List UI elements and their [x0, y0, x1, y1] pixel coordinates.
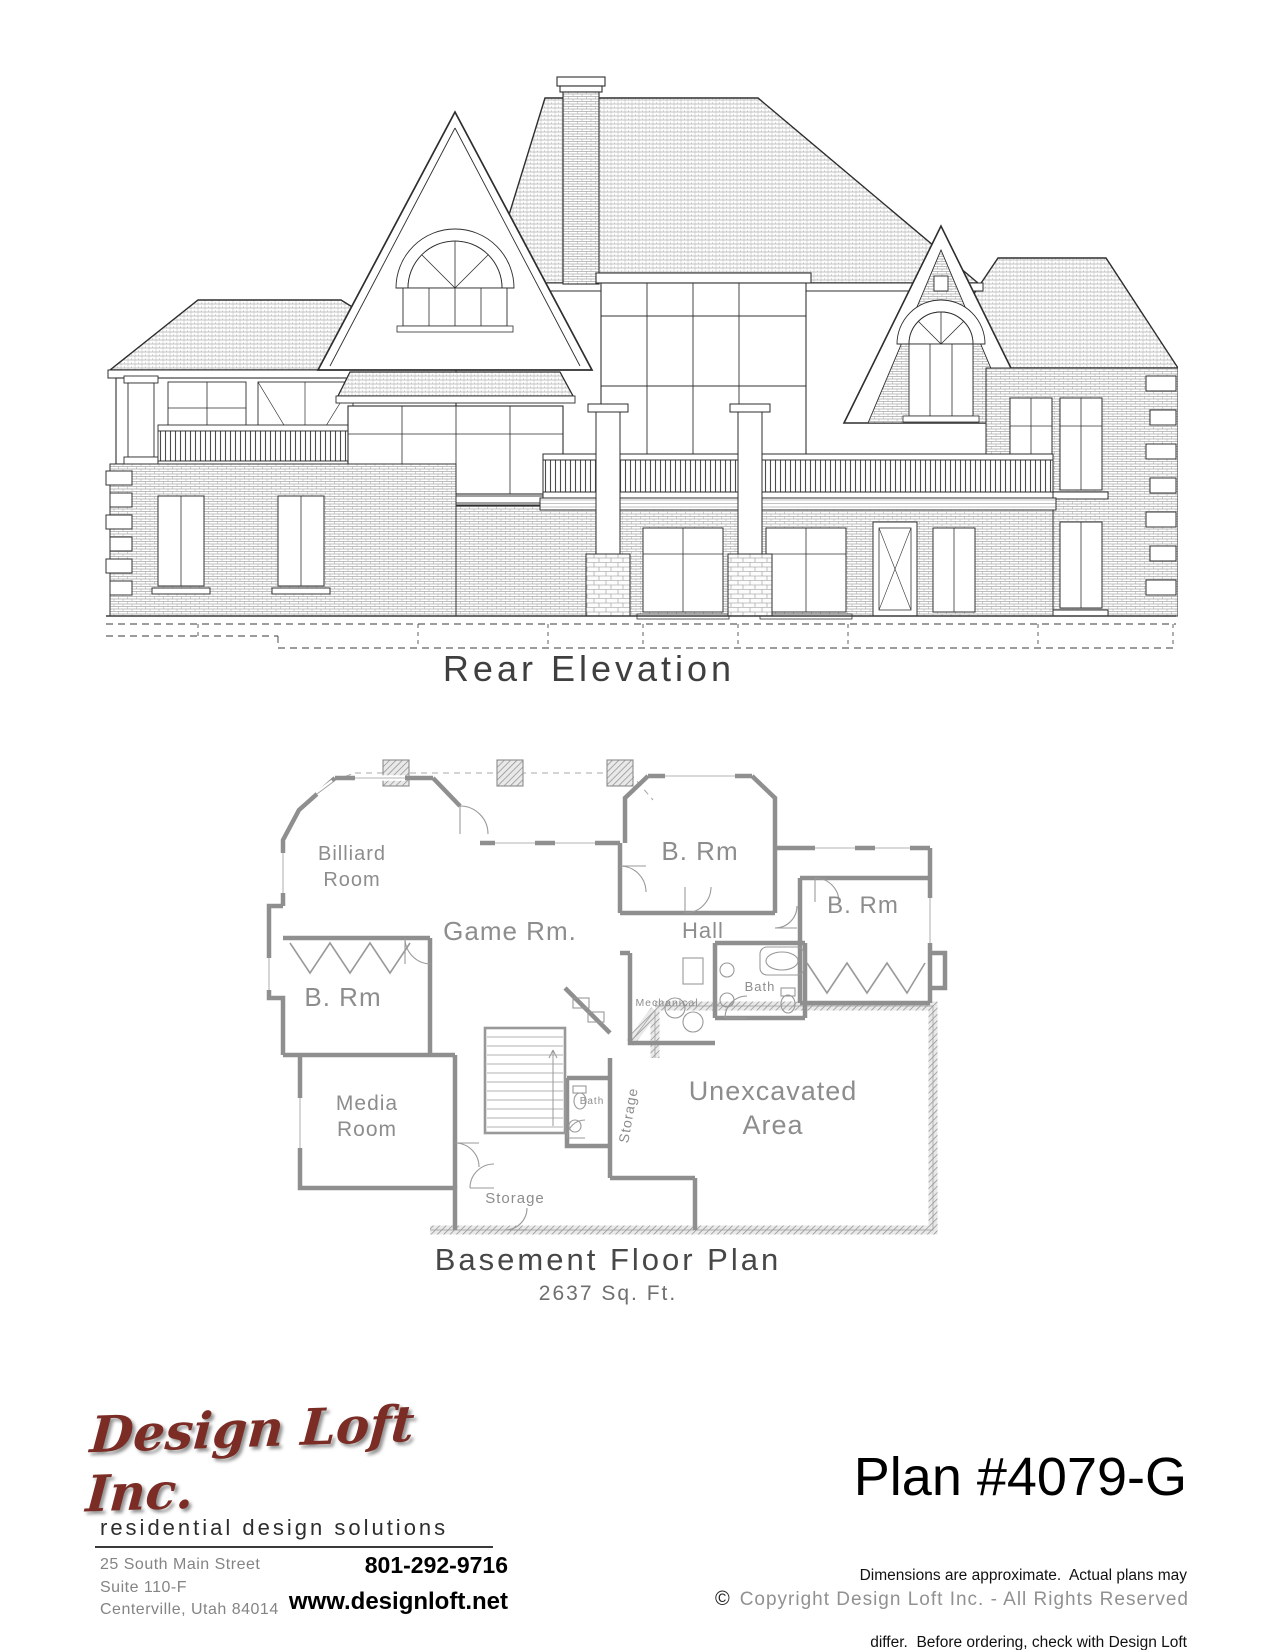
website-url: www.designloft.net [280, 1588, 508, 1616]
disclaimer-line-2: differ. Before ordering, check with Desi… [757, 1632, 1187, 1650]
plan-sheet-page: Rear Elevation [0, 0, 1275, 1650]
address-line-3: Centerville, Utah 84014 [100, 1599, 279, 1622]
label-storage-side: Storage [615, 1086, 640, 1144]
address-block: 25 South Main Street Suite 110-F Centerv… [100, 1554, 279, 1622]
label-mechanical: Mechanical [635, 997, 698, 1009]
label-media-1: Media [336, 1092, 398, 1115]
disclaimer-text: Dimensions are approximate. Actual plans… [757, 1520, 1187, 1650]
floor-plan-title: Basement Floor Plan [0, 1242, 1216, 1278]
central-window-wall [594, 273, 813, 468]
disclaimer-line-1: Dimensions are approximate. Actual plans… [757, 1565, 1187, 1587]
copyright-line: ©Copyright Design Loft Inc. - All Rights… [715, 1588, 1189, 1611]
left-wall [106, 464, 456, 616]
basement-floor-plan-drawing: Billiard Room Game Rm. B. Rm B. Rm Hall … [255, 748, 955, 1248]
label-game-room: Game Rm. [443, 916, 577, 946]
label-hall: Hall [682, 918, 724, 943]
tagline-rule [95, 1546, 493, 1548]
label-billiard-1: Billiard [318, 843, 386, 865]
label-unexcavated-1: Unexcavated [689, 1076, 858, 1106]
label-bedroom-right: B. Rm [827, 892, 899, 919]
logo-tagline: residential design solutions [100, 1515, 500, 1541]
label-bedroom-left: B. Rm [304, 982, 381, 1012]
design-loft-logo: Design Loft Inc. [84, 1390, 512, 1523]
label-media-2: Room [337, 1118, 397, 1141]
label-unexcavated-2: Area [742, 1110, 803, 1140]
rear-elevation-drawing [98, 76, 1178, 656]
copyright-text: Copyright Design Loft Inc. - All Rights … [740, 1589, 1189, 1610]
label-bedroom-top: B. Rm [661, 836, 738, 866]
stairs [485, 1028, 565, 1133]
floor-plan-subtitle: 2637 Sq. Ft. [0, 1282, 1216, 1306]
foundation-lines [106, 616, 1176, 648]
label-bath-small: Bath [580, 1096, 605, 1107]
plan-number: Plan #4079-G [854, 1446, 1187, 1508]
address-line-2: Suite 110-F [100, 1577, 279, 1600]
closet-rods [290, 943, 925, 993]
copyright-symbol: © [715, 1588, 730, 1610]
label-billiard-2: Room [323, 869, 380, 891]
label-storage-bottom: Storage [485, 1190, 545, 1207]
phone-number: 801-292-9716 [280, 1552, 508, 1579]
elevation-title: Rear Elevation [0, 648, 1178, 690]
address-line-1: 25 South Main Street [100, 1554, 279, 1577]
label-bath-main: Bath [745, 979, 776, 994]
chimney [557, 77, 605, 284]
